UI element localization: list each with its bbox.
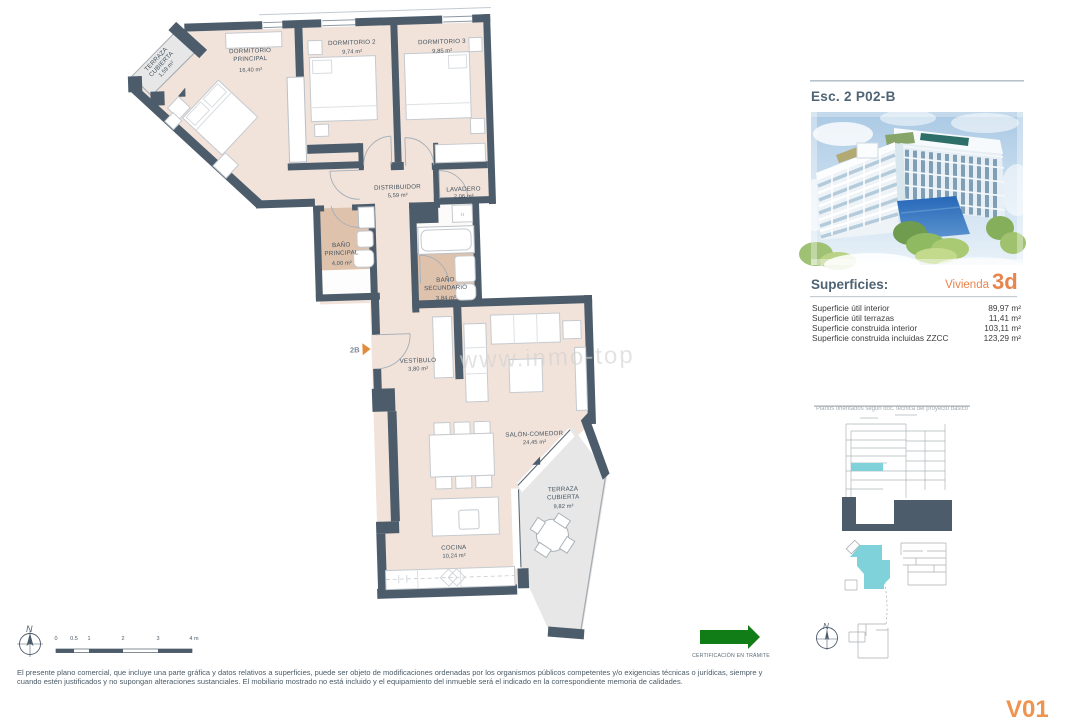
svg-text:9,82 m²: 9,82 m²: [554, 504, 574, 511]
svg-text:2: 2: [121, 636, 124, 642]
svg-text:VESTÍBULO: VESTÍBULO: [400, 357, 437, 365]
svg-text:0.5: 0.5: [70, 636, 78, 642]
svg-text:9,85 m²: 9,85 m²: [432, 48, 452, 55]
svg-text:BAÑO: BAÑO: [436, 276, 455, 284]
svg-text:Vivienda: Vivienda: [945, 279, 990, 291]
svg-text:Esc. 2 P02-B: Esc. 2 P02-B: [811, 89, 896, 104]
svg-text:cuando estén justificados y no: cuando estén justificados y no supongan …: [17, 677, 683, 686]
svg-text:2B: 2B: [350, 345, 360, 354]
svg-text:123,29 m²: 123,29 m²: [984, 333, 1022, 343]
svg-text:DORMITORIO: DORMITORIO: [229, 47, 271, 55]
svg-text:11,41 m²: 11,41 m²: [989, 313, 1021, 323]
svg-text:CUBIERTA: CUBIERTA: [547, 493, 580, 501]
svg-text:SECUNDARIO: SECUNDARIO: [424, 284, 467, 292]
svg-text:89,97 m²: 89,97 m²: [988, 303, 1021, 313]
svg-text:N: N: [26, 624, 33, 634]
svg-text:www.inmo-top: www.inmo-top: [459, 342, 635, 375]
svg-text:PRINCIPAL: PRINCIPAL: [233, 55, 268, 63]
svg-text:3,80 m²: 3,80 m²: [408, 366, 428, 373]
svg-text:Superficie útil terrazas: Superficie útil terrazas: [812, 313, 894, 323]
svg-text:1: 1: [87, 636, 90, 642]
svg-text:LAVADERO: LAVADERO: [446, 185, 481, 193]
svg-text:N: N: [823, 622, 829, 631]
svg-text:0: 0: [54, 636, 57, 642]
svg-text:Superficie construida incluida: Superficie construida incluidas ZZCC: [812, 333, 949, 343]
svg-text:El presente plano comercial, q: El presente plano comercial, que incluye…: [17, 668, 763, 677]
svg-text:4,00 m²: 4,00 m²: [332, 260, 352, 267]
svg-text:V01: V01: [1006, 696, 1049, 720]
svg-text:Planos orientados según doc. t: Planos orientados según doc. técnica del…: [816, 406, 969, 412]
svg-text:BAÑO: BAÑO: [332, 242, 351, 250]
svg-text:Superficie útil interior: Superficie útil interior: [812, 303, 890, 313]
svg-text:10,24 m²: 10,24 m²: [442, 553, 465, 560]
svg-text:Superficie construida interior: Superficie construida interior: [812, 323, 917, 333]
svg-text:2,06 m²: 2,06 m²: [454, 194, 474, 201]
svg-text:DISTRIBUIDOR: DISTRIBUIDOR: [374, 183, 421, 191]
svg-text:4 m: 4 m: [189, 636, 199, 642]
svg-text:COCINA: COCINA: [441, 544, 467, 552]
svg-text:5,59 m²: 5,59 m²: [388, 193, 408, 200]
svg-text:PRINCIPAL: PRINCIPAL: [324, 249, 359, 257]
svg-text:3d: 3d: [992, 269, 1018, 294]
svg-text:CERTIFICACIÓN EN TRÁMITE: CERTIFICACIÓN EN TRÁMITE: [692, 652, 770, 659]
svg-text:24,45 m²: 24,45 m²: [523, 439, 546, 446]
svg-text:9,74 m²: 9,74 m²: [342, 49, 362, 56]
svg-text:3,84 m²: 3,84 m²: [436, 295, 456, 302]
svg-text:16,40 m²: 16,40 m²: [239, 67, 262, 74]
svg-text:103,11 m²: 103,11 m²: [984, 323, 1021, 333]
svg-text:Superficies:: Superficies:: [811, 277, 888, 292]
svg-text:3: 3: [156, 636, 159, 642]
svg-text:TERRAZA: TERRAZA: [548, 485, 579, 493]
